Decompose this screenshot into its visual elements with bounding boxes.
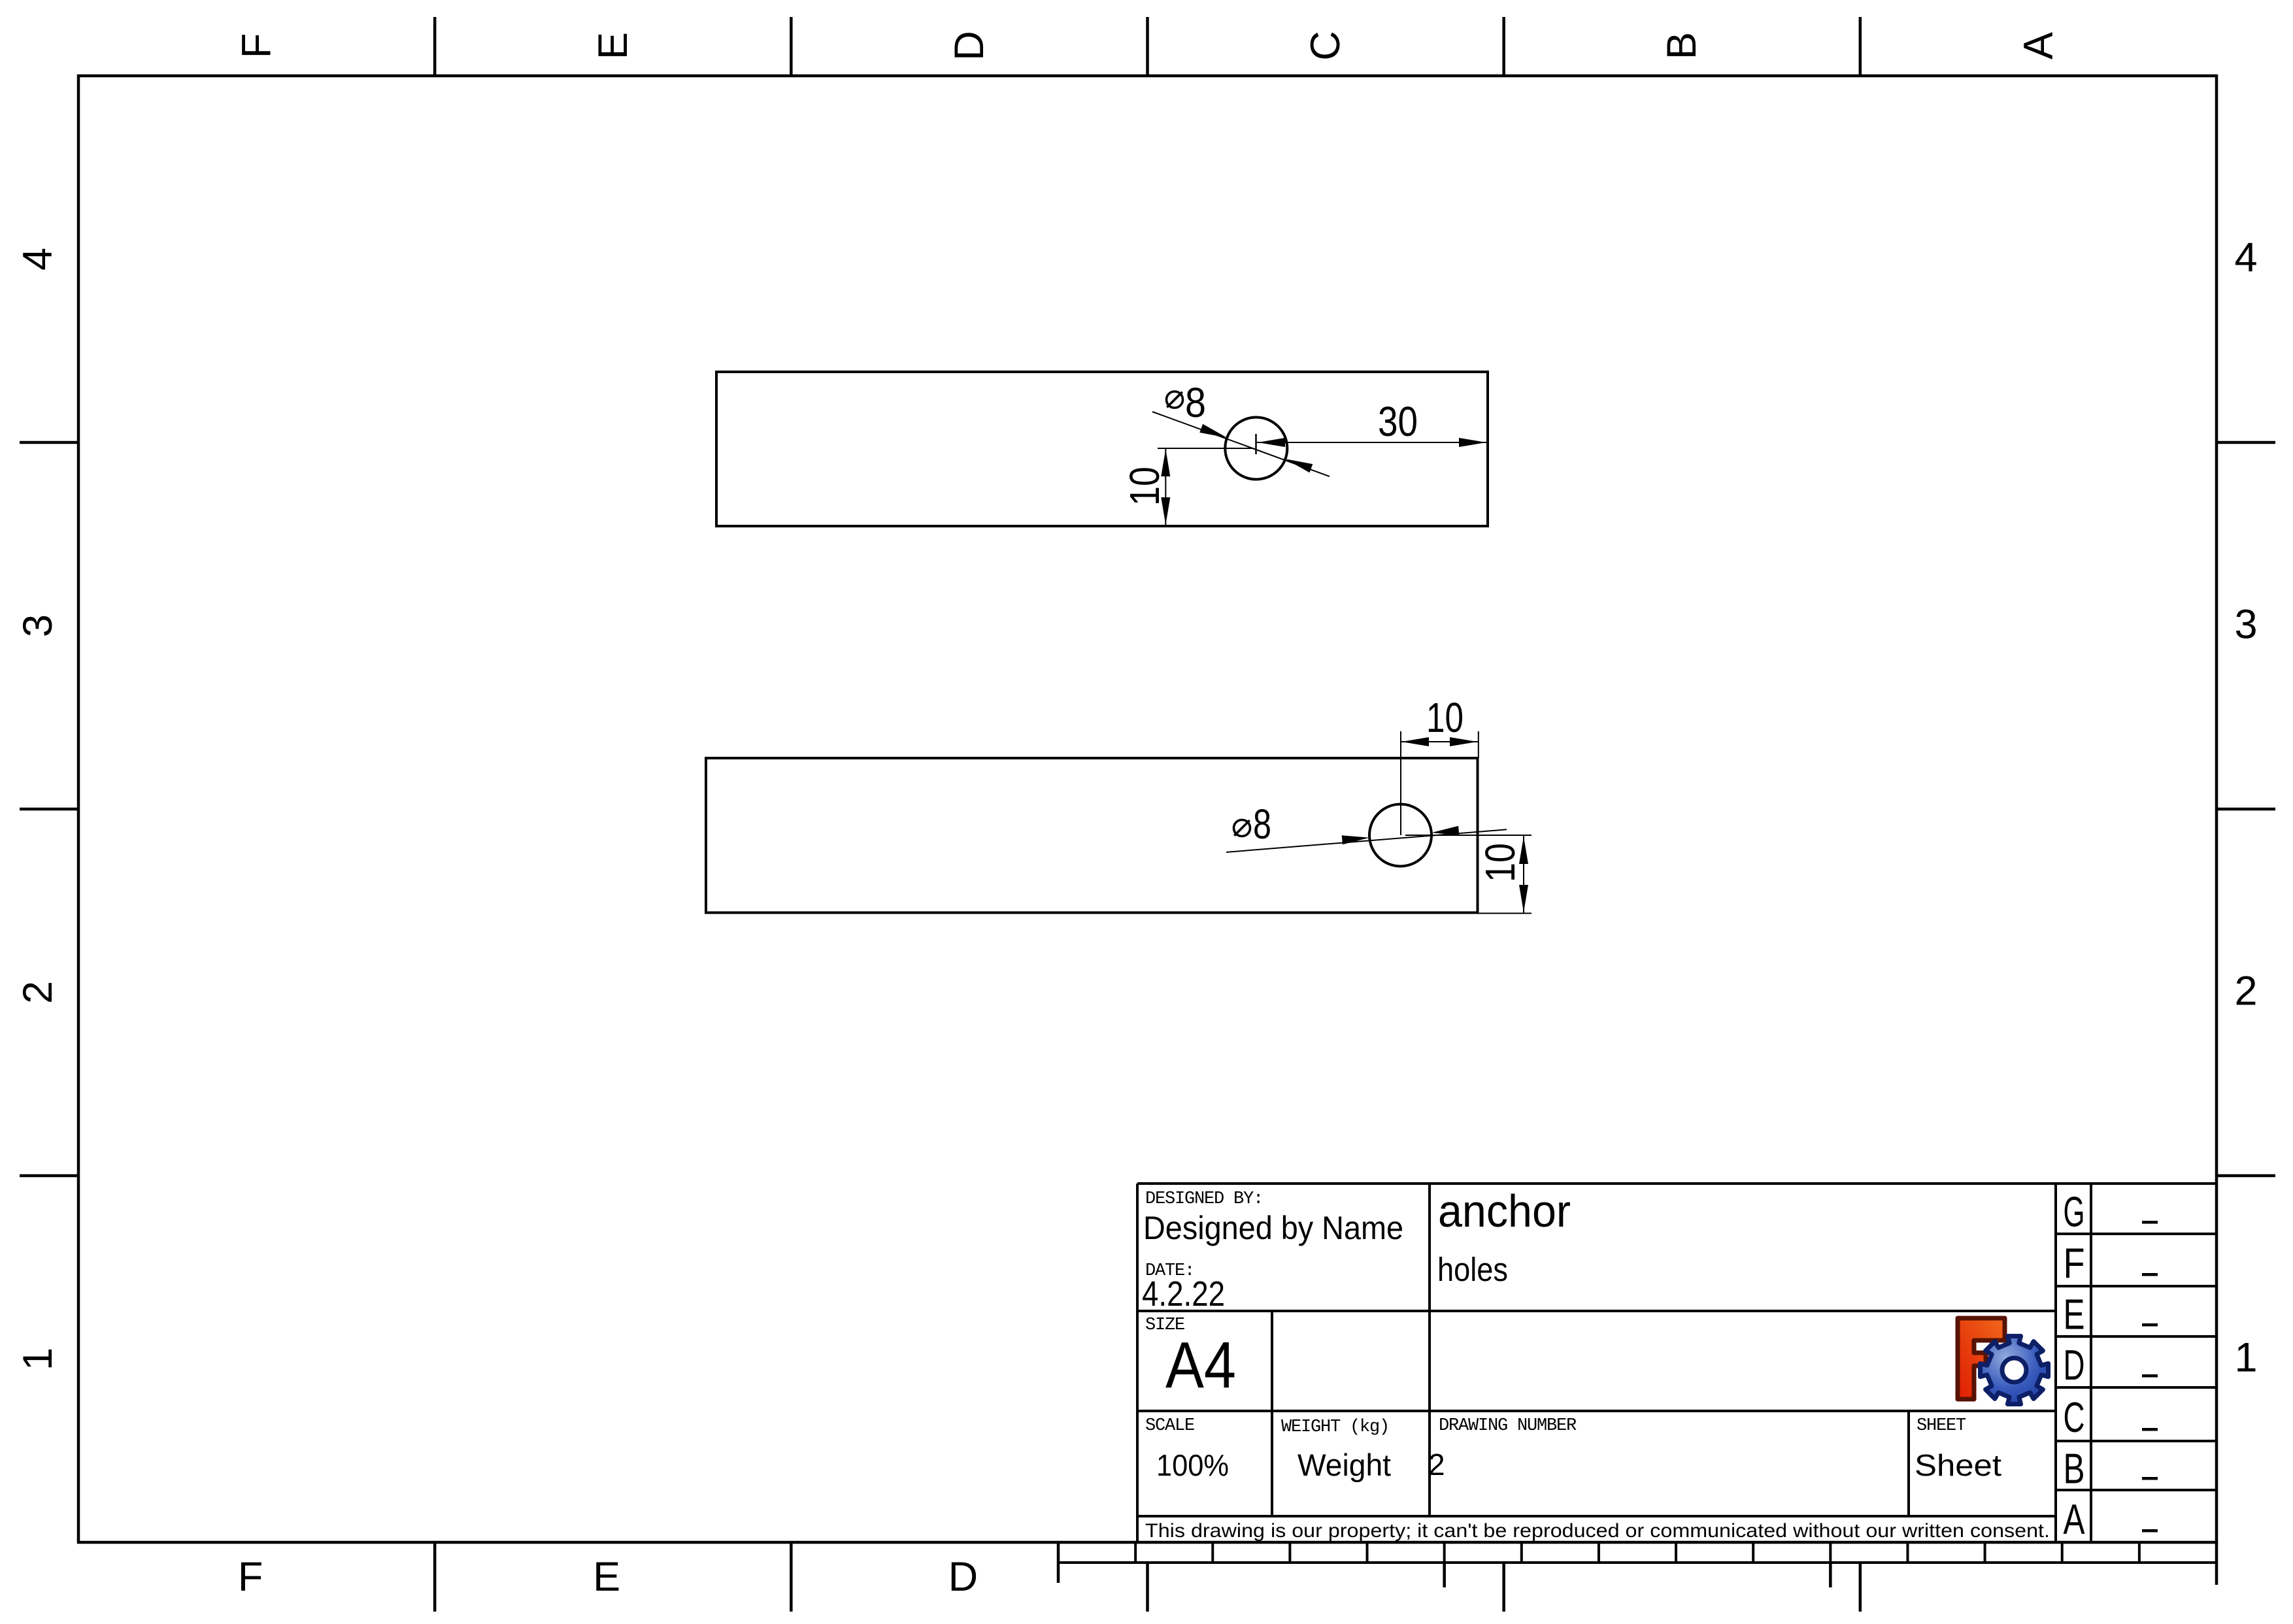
svg-text:B: B	[1659, 32, 1705, 59]
svg-text:4: 4	[2234, 235, 2257, 281]
svg-text:F: F	[2064, 1239, 2085, 1287]
svg-text:C: C	[1303, 31, 1348, 61]
svg-text:10: 10	[1426, 694, 1464, 741]
svg-text:E: E	[590, 32, 636, 59]
svg-text:F: F	[238, 1554, 263, 1600]
svg-text:C: C	[2064, 1393, 2085, 1441]
svg-text:B: B	[2064, 1445, 2085, 1493]
svg-text:DESIGNED BY:: DESIGNED BY:	[1145, 1189, 1263, 1209]
svg-text:holes: holes	[1437, 1251, 1508, 1288]
svg-text:This drawing is our property;: This drawing is our property; it can't b…	[1145, 1520, 2050, 1542]
svg-text:Sheet: Sheet	[1915, 1448, 2001, 1482]
svg-text:1: 1	[15, 1348, 61, 1370]
svg-text:1: 1	[2234, 1335, 2257, 1381]
svg-text:DRAWING NUMBER: DRAWING NUMBER	[1439, 1416, 1577, 1436]
svg-text:F: F	[234, 33, 280, 58]
svg-text:10: 10	[1477, 843, 1524, 882]
svg-text:A4: A4	[1165, 1329, 1236, 1402]
svg-text:2: 2	[1428, 1448, 1445, 1482]
svg-text:A: A	[2015, 32, 2061, 59]
svg-text:8: 8	[1253, 801, 1271, 848]
svg-text:D: D	[946, 31, 992, 61]
svg-text:D: D	[2064, 1341, 2085, 1389]
svg-text:SCALE: SCALE	[1145, 1416, 1194, 1436]
svg-text:A: A	[2064, 1495, 2085, 1543]
svg-text:2: 2	[15, 981, 61, 1004]
svg-text:SHEET: SHEET	[1916, 1416, 1966, 1436]
svg-text:30: 30	[1378, 398, 1418, 445]
svg-text:Weight: Weight	[1297, 1448, 1391, 1482]
svg-text:10: 10	[1121, 467, 1168, 506]
svg-text:3: 3	[15, 614, 61, 637]
svg-text:E: E	[593, 1554, 620, 1600]
svg-text:2: 2	[2234, 969, 2257, 1014]
svg-text:4.2.22: 4.2.22	[1142, 1274, 1225, 1314]
svg-text:4: 4	[15, 248, 61, 271]
svg-text:8: 8	[1185, 379, 1206, 426]
svg-text:3: 3	[2234, 602, 2257, 648]
svg-text:100%: 100%	[1156, 1448, 1229, 1482]
svg-text:anchor: anchor	[1438, 1185, 1571, 1236]
svg-text:G: G	[2064, 1188, 2085, 1236]
svg-text:D: D	[948, 1554, 979, 1600]
svg-text:Designed by Name: Designed by Name	[1143, 1210, 1403, 1246]
svg-text:WEIGHT (kg): WEIGHT (kg)	[1281, 1417, 1389, 1437]
svg-text:E: E	[2064, 1291, 2085, 1338]
